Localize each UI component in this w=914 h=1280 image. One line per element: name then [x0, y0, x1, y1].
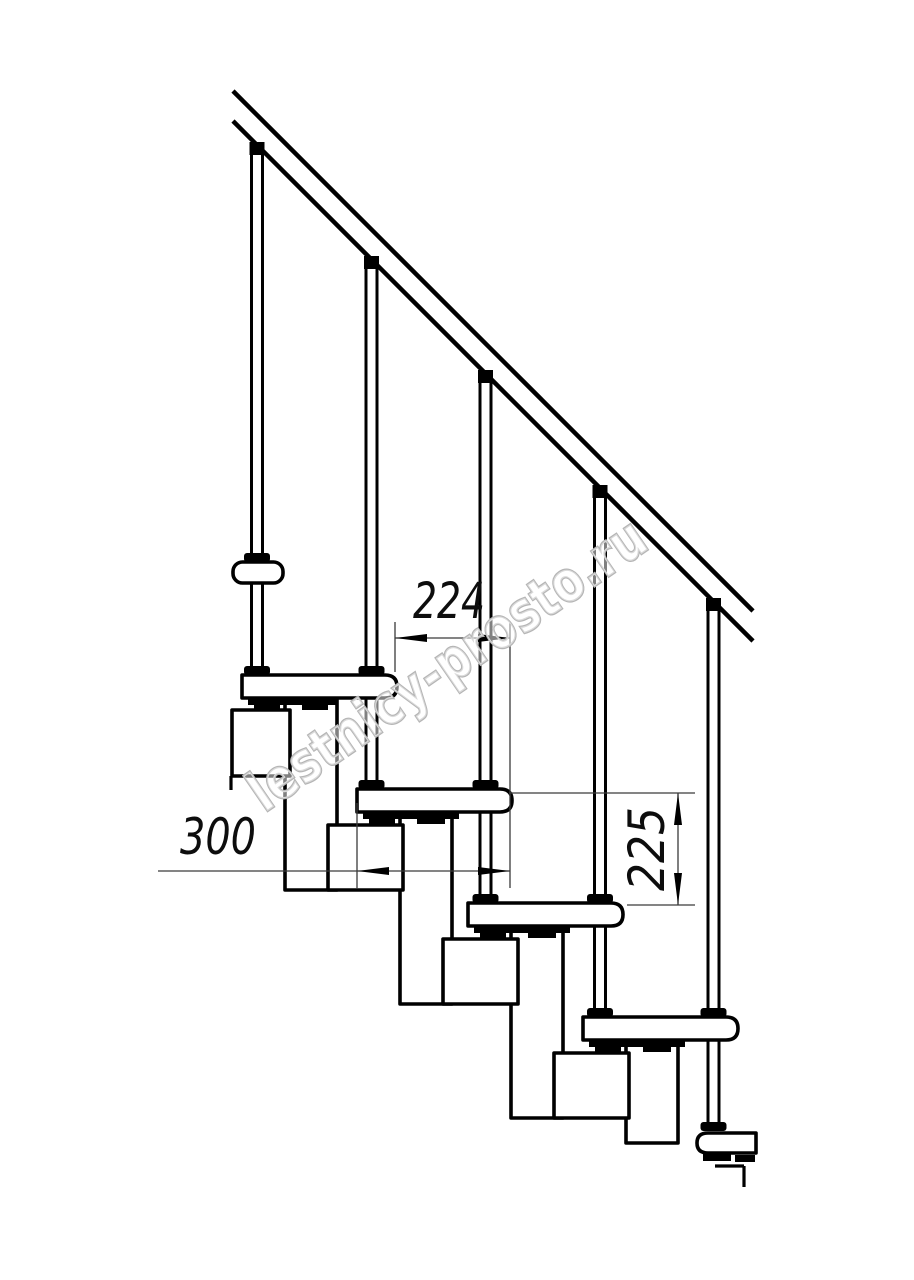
floor-foot — [697, 1133, 756, 1187]
module-clamp-3 — [554, 1053, 629, 1118]
step-4 — [583, 1017, 738, 1040]
support-column-4 — [626, 1040, 678, 1143]
module-clamp-1 — [328, 825, 403, 890]
baluster-1 — [252, 146, 263, 675]
upper-step-fragment — [233, 562, 283, 583]
staircase-elevation-drawing: 224 300 225 lestnicy-prosto.ru — [0, 0, 914, 1280]
step-3 — [468, 903, 623, 926]
step-2 — [357, 789, 512, 812]
baluster-5 — [708, 604, 719, 1131]
drawing-canvas: 224 300 225 lestnicy-prosto.ru — [0, 0, 914, 1280]
dimension-step-rise: 225 — [509, 793, 695, 905]
dim-label-225: 225 — [618, 807, 676, 891]
dim-label-300: 300 — [180, 808, 256, 866]
module-clamp-2 — [443, 939, 518, 1004]
handrail — [233, 91, 753, 641]
